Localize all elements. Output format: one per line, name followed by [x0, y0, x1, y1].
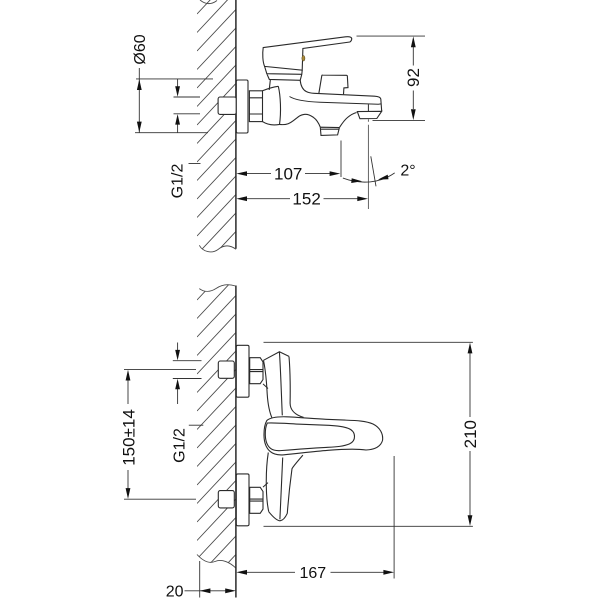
svg-text:167: 167 [299, 565, 326, 582]
svg-text:G1/2: G1/2 [172, 428, 189, 463]
svg-text:152: 152 [292, 190, 320, 209]
svg-text:Ø60: Ø60 [132, 34, 149, 64]
svg-text:20: 20 [166, 584, 184, 600]
svg-text:92: 92 [404, 68, 423, 87]
svg-text:G1/2: G1/2 [170, 164, 187, 199]
svg-text:107: 107 [274, 165, 302, 184]
svg-text:150±14: 150±14 [120, 409, 139, 466]
svg-text:210: 210 [461, 420, 480, 448]
svg-text:2°: 2° [400, 163, 415, 180]
